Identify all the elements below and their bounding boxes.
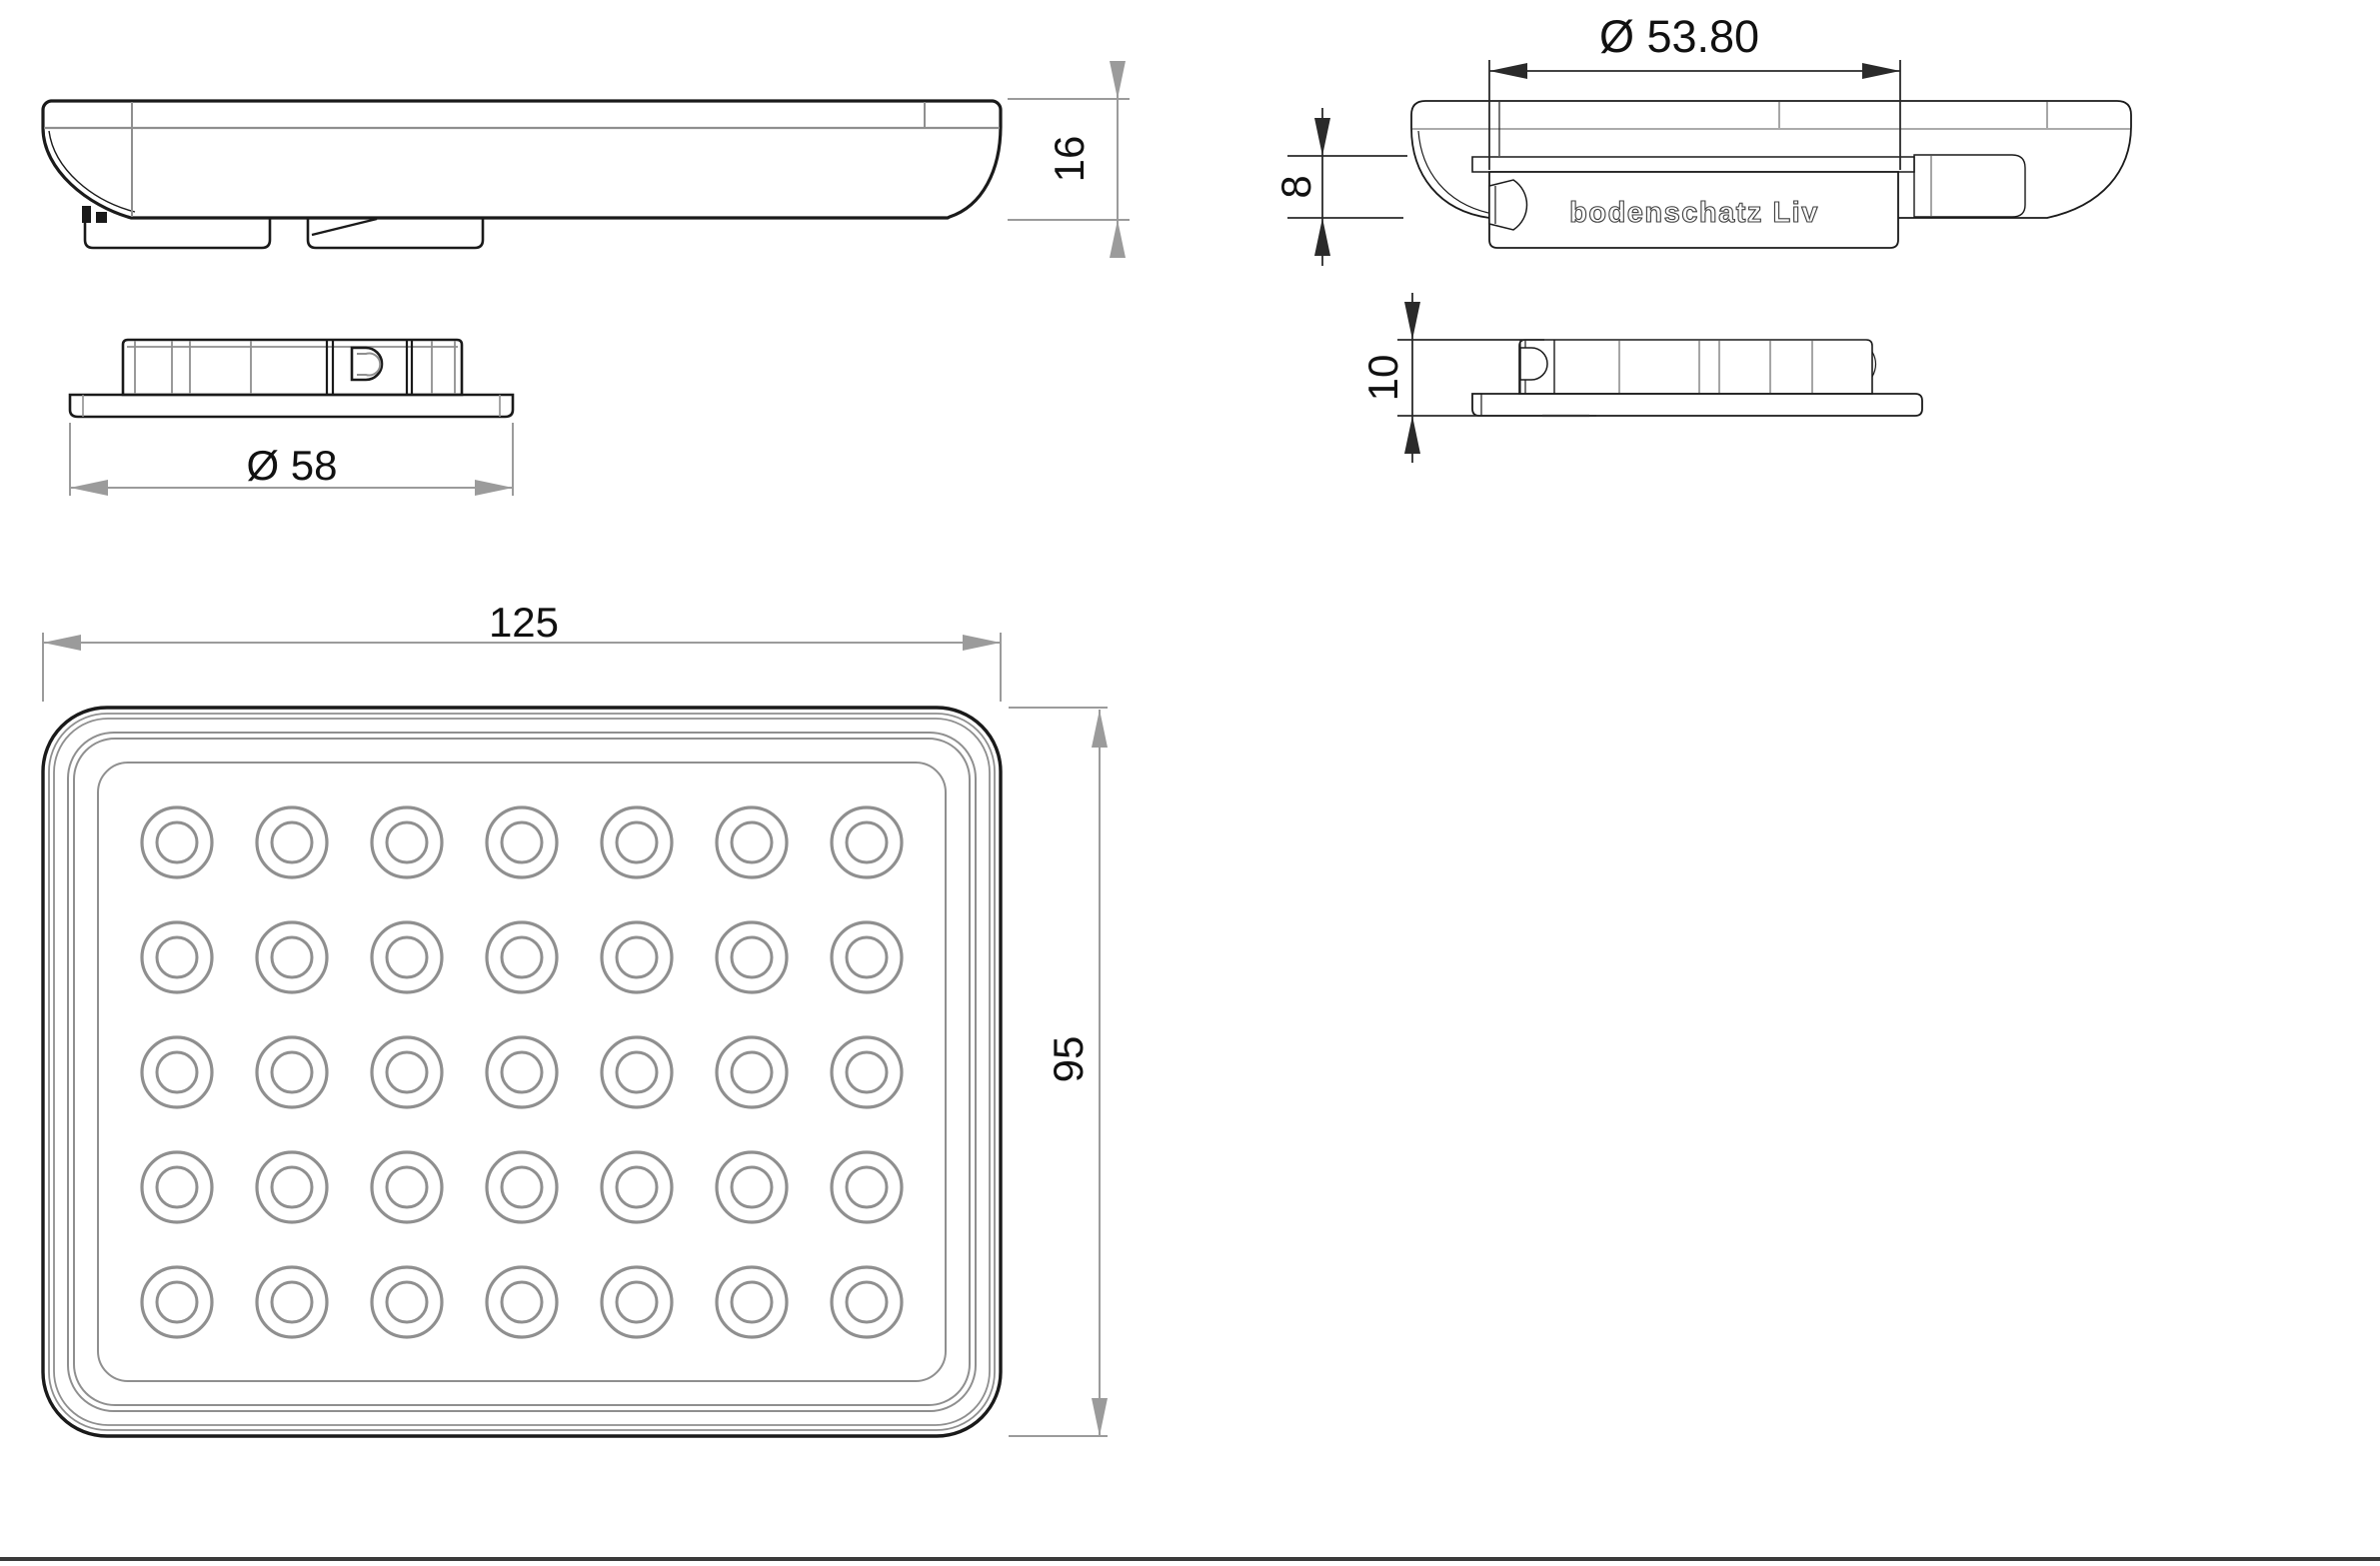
dimension-95: 95 <box>1009 708 1108 1436</box>
dimension-8: 8 <box>1272 108 1407 266</box>
plate-side-view <box>70 340 513 417</box>
technical-drawing-canvas: 16 Ø 58 <box>0 0 2380 1566</box>
dim-label-8: 8 <box>1272 175 1319 198</box>
dim-label-16: 16 <box>1046 136 1093 183</box>
brand-logo-text: bodenschatz Liv <box>1569 197 1819 229</box>
plan-view <box>43 708 1001 1436</box>
dimension-16: 16 <box>1008 61 1130 258</box>
dim-label-10: 10 <box>1359 355 1406 402</box>
dimension-58: Ø 58 <box>70 423 513 496</box>
dimension-125: 125 <box>43 599 1001 702</box>
clip-mark <box>82 206 91 223</box>
dim-label-58: Ø 58 <box>246 442 337 489</box>
dim-label-125: 125 <box>489 599 559 646</box>
end-view: bodenschatz Liv <box>1411 101 2131 248</box>
dim-label-53-80: Ø 53.80 <box>1599 11 1759 62</box>
side-view <box>43 101 1001 248</box>
plate-end-view <box>1472 340 1922 416</box>
drawing-page: 16 Ø 58 <box>0 0 2380 1566</box>
dimension-10: 10 <box>1359 293 1596 463</box>
dim-label-95: 95 <box>1045 1036 1092 1083</box>
clip-mark <box>96 212 107 223</box>
clip-detail <box>1520 348 1547 380</box>
